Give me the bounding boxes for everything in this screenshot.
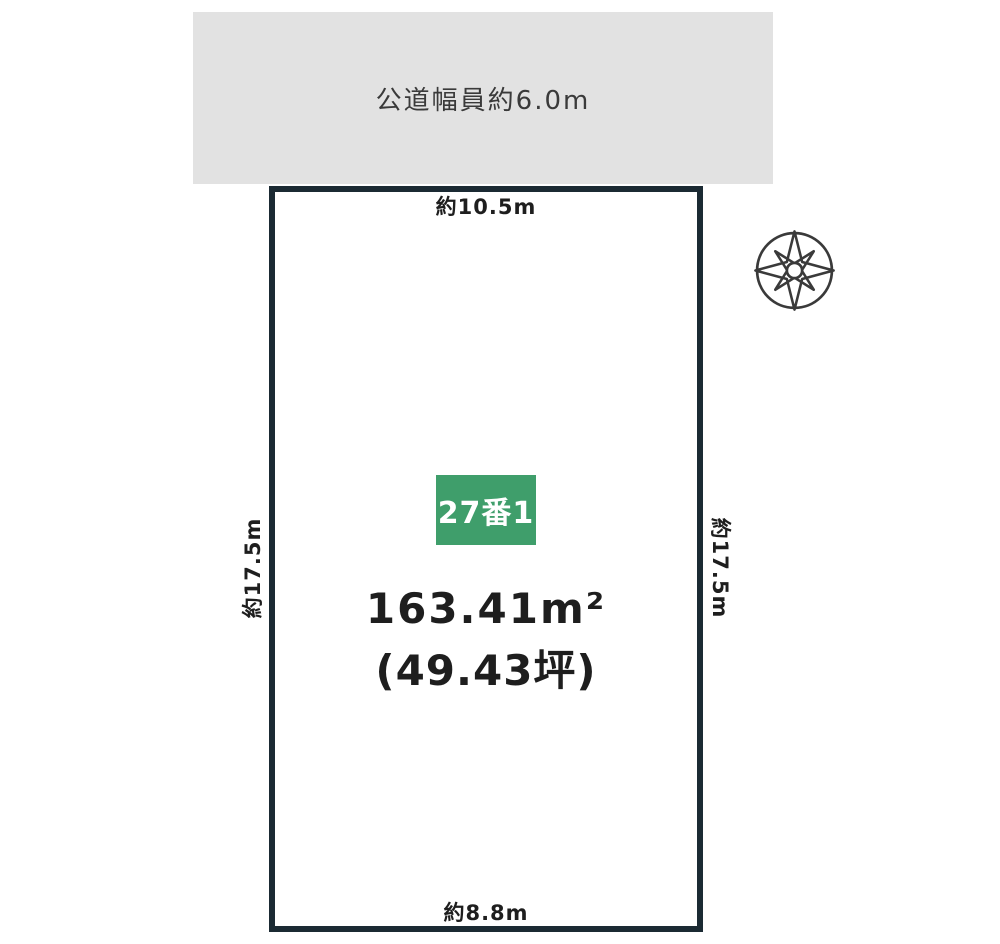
dimension-bottom-label: 約8.8m [269, 897, 703, 927]
area-tsubo: (49.43坪) [269, 648, 703, 694]
road-area: 公道幅員約6.0m [193, 12, 773, 184]
plot-outline [269, 186, 703, 932]
dimension-top-label: 約10.5m [269, 191, 703, 221]
area-square-meters: 163.41m² [269, 586, 703, 632]
dimension-right-label: 約17.5m [712, 498, 736, 638]
road-width-label: 公道幅員約6.0m [376, 80, 591, 117]
compass-rose-icon [752, 228, 837, 313]
lot-number-label: 27番1 [438, 488, 535, 532]
lot-number-badge: 27番1 [436, 475, 536, 545]
dimension-left-label: 約17.5m [237, 498, 261, 638]
land-plot-diagram: 公道幅員約6.0m 約10.5m 約8.8m 約17.5m 約17.5m 27番… [0, 0, 1000, 944]
